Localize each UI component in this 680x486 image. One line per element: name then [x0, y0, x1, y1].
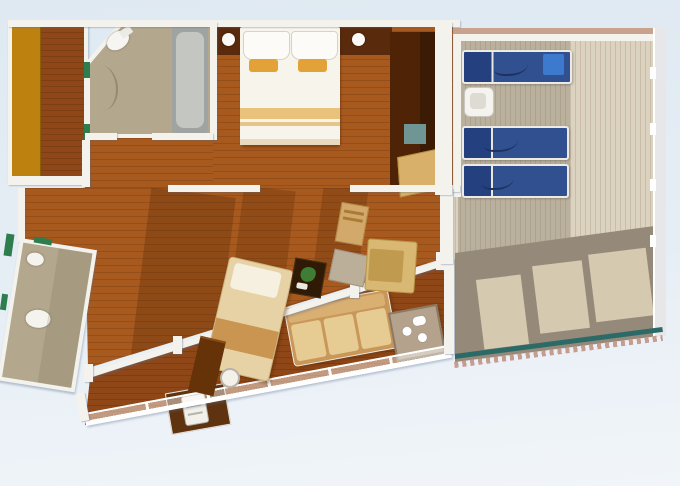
lounger-towel-line: [484, 132, 518, 152]
bed-accent-pillow: [249, 59, 278, 72]
armchair: [364, 238, 418, 293]
plant: [299, 266, 316, 283]
second-bathroom-door-marker: [4, 234, 15, 257]
deck-side-table-top: [470, 93, 486, 109]
bed-accent-pillow: [298, 59, 327, 72]
sofa-cushion: [323, 314, 359, 356]
closet-teal-mat: [404, 124, 426, 144]
living-right-wall: [440, 188, 453, 264]
closet-deck-wall: [435, 22, 452, 195]
deck-right-wall-stanchion: [650, 179, 656, 191]
corridor-left-wall: [82, 140, 90, 187]
deck-right-wall-stanchion: [650, 67, 656, 79]
plant-side-table: [289, 257, 327, 298]
bed-runner-stripe-thin: [240, 122, 340, 126]
sofa-cushion: [291, 320, 327, 362]
bathroom-bottom-wall-right: [152, 133, 213, 140]
sun-lounger-1: [462, 50, 572, 84]
bathtub-inner: [176, 32, 204, 128]
sun-lounger-3: [462, 164, 569, 198]
minibar-shelf-line: [188, 411, 203, 416]
bed-foot-band: [240, 139, 340, 145]
railing-corner-post: [444, 258, 454, 354]
wardrobe-room: [8, 22, 88, 180]
bedside-lamp: [352, 33, 365, 46]
sun-lounger-2: [462, 126, 569, 160]
deck-side-table: [464, 87, 494, 117]
chair-back-slat: [343, 216, 363, 222]
deck-top-wall-white: [450, 34, 664, 41]
teacup: [402, 326, 412, 336]
vanity-curve: [88, 66, 118, 110]
deck-light-window: [476, 275, 529, 350]
floor-plan-stage: [0, 0, 680, 486]
deck-right-wall-stanchion: [650, 123, 656, 135]
teapot: [412, 315, 426, 326]
suite-top-wall: [8, 20, 460, 27]
bed-pillow: [291, 31, 338, 60]
window-wall-post: [84, 364, 93, 382]
bedside-lamp: [222, 33, 235, 46]
lounger-cushion: [543, 54, 564, 75]
plant-dish: [296, 282, 308, 290]
second-bathroom: [0, 238, 97, 392]
window-wall-post: [173, 336, 182, 354]
bed-pillow: [243, 31, 290, 60]
lounger-towel-line: [494, 56, 528, 76]
double-bed: [240, 27, 340, 145]
teacup: [417, 332, 427, 342]
second-bathroom-door-marker: [0, 294, 8, 311]
living-left-wall: [18, 188, 25, 242]
master-bathroom: [86, 22, 214, 138]
bathtub: [172, 27, 208, 133]
lounger-towel-line: [482, 170, 514, 190]
bedroom-living-wall-left: [168, 185, 260, 192]
sofa-cushion: [356, 308, 392, 350]
armchair-seat: [368, 249, 404, 283]
wardrobe-bottom-wall: [8, 176, 90, 185]
deck-light-window: [588, 248, 654, 323]
deck-top-wall: [450, 27, 664, 34]
bathroom-bottom-wall-left: [85, 133, 117, 140]
deck-right-wall-stanchion: [650, 235, 656, 247]
chair-back-slat: [344, 209, 364, 215]
sun-deck: [450, 25, 668, 373]
bed-runner-stripe: [240, 108, 340, 119]
chaise-pillow: [230, 262, 283, 298]
bathroom-door-marker: [84, 62, 90, 78]
corridor-floor: [85, 138, 213, 192]
round-floor-lamp: [220, 368, 240, 388]
bathroom-bedroom-wall: [210, 22, 217, 140]
wardrobe-cabinet: [12, 26, 41, 176]
deck-light-window: [532, 260, 590, 334]
bedroom-sunlight-patch: [254, 147, 336, 190]
